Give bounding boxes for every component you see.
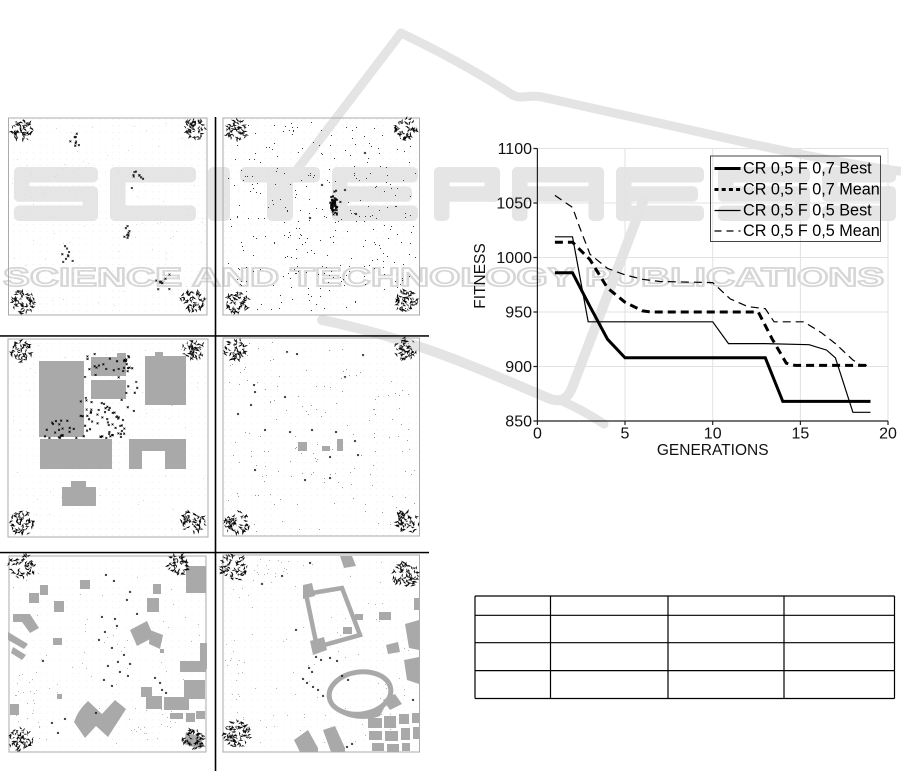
svg-text:FITNESS: FITNESS (472, 243, 489, 308)
svg-text:850: 850 (505, 414, 532, 431)
svg-text:950: 950 (505, 305, 532, 322)
svg-text:1050: 1050 (496, 196, 532, 213)
svg-text:900: 900 (505, 359, 532, 376)
svg-text:CR 0,5 F 0,5 Best: CR 0,5 F 0,5 Best (743, 202, 872, 220)
svg-text:CR 0,5 F 0,5 Mean: CR 0,5 F 0,5 Mean (743, 222, 880, 240)
svg-text:5: 5 (621, 426, 630, 443)
svg-text:0: 0 (533, 426, 542, 443)
svg-text:15: 15 (792, 426, 810, 443)
svg-text:10: 10 (704, 426, 722, 443)
svg-text:GENERATIONS: GENERATIONS (657, 442, 769, 459)
svg-text:1000: 1000 (496, 250, 532, 267)
svg-text:CR 0,5 F 0,7 Mean: CR 0,5 F 0,7 Mean (743, 181, 880, 199)
svg-text:20: 20 (879, 426, 897, 443)
svg-text:CR 0,5 F 0,7 Best: CR 0,5 F 0,7 Best (743, 160, 872, 178)
svg-text:1100: 1100 (498, 141, 533, 158)
